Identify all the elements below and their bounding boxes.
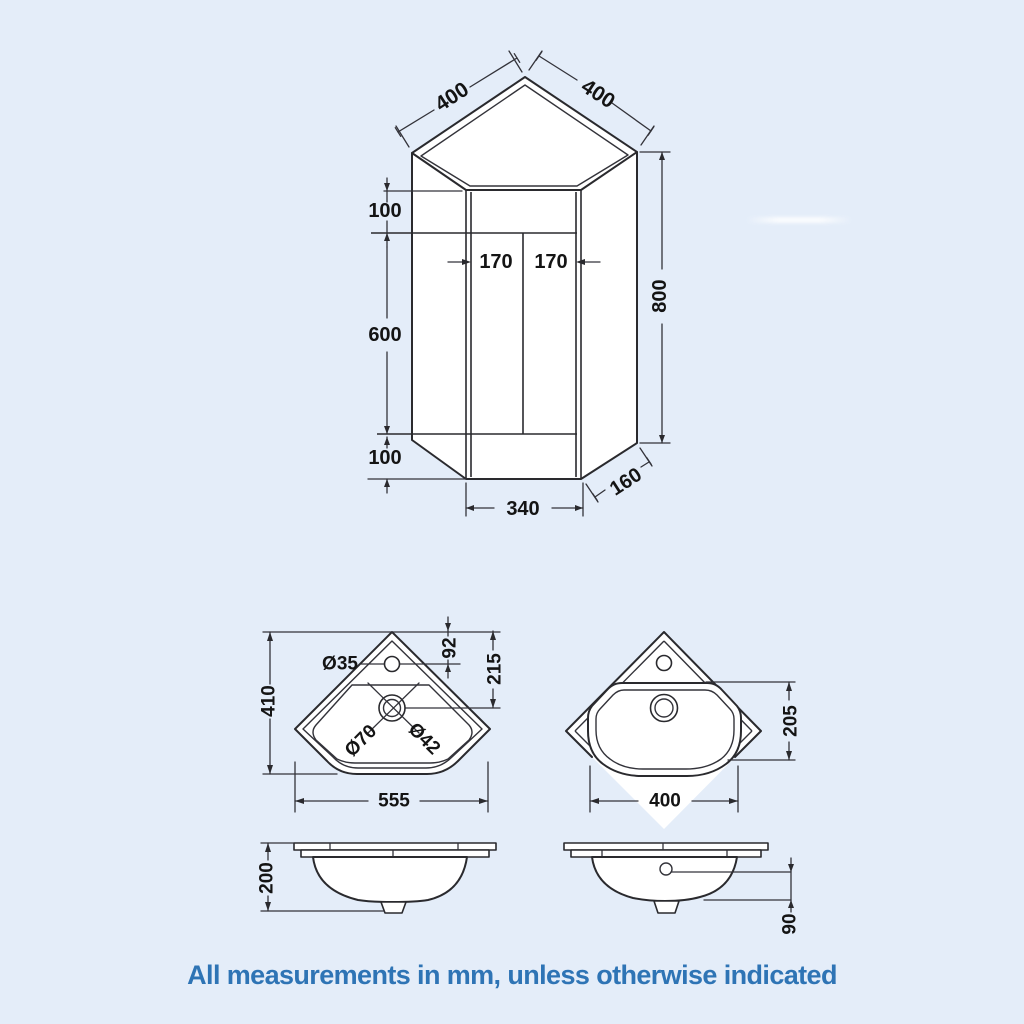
- dim-top-right-edge-label: 400: [577, 75, 619, 113]
- basin-plan-view: Ø35 Ø70 Ø42 92 215 410: [259, 617, 506, 812]
- dim-basin-depth: 410: [259, 632, 280, 774]
- dim-bowl-depth-label: 205: [781, 705, 802, 737]
- diagram-page: 400 400 100 600: [0, 0, 1024, 1024]
- dim-waste-setback: 215: [485, 631, 506, 708]
- dim-tap-setback-label: 92: [440, 637, 461, 658]
- side2-overflow-hole: [660, 863, 672, 875]
- vanity-technical-drawing: 400 400 100 600: [0, 0, 1024, 1024]
- side1-rim-top-slab: [294, 843, 496, 850]
- dim-overall-height-label: 800: [649, 279, 671, 312]
- side1-waste-stub: [381, 902, 406, 913]
- cabinet-view: 400 400 100 600: [368, 51, 671, 520]
- dim-plinth-height-label: 100: [368, 447, 401, 469]
- dim-counter-band-label: 100: [368, 200, 401, 222]
- side2-rim-top-slab: [564, 843, 768, 850]
- dim-tap-setback: 92: [440, 617, 461, 678]
- basin-front-plan-view: 205 400: [566, 632, 802, 829]
- dim-front-width: 340: [466, 483, 583, 520]
- dim-tap-hole-label: Ø35: [322, 654, 358, 675]
- side2-waste-stub: [654, 901, 679, 913]
- dim-left-door-label: 170: [479, 251, 512, 273]
- dim-basin-depth-label: 410: [259, 685, 280, 717]
- dim-overflow-setback: 90: [780, 858, 801, 935]
- dim-side-return-label: 160: [606, 464, 646, 501]
- dim-side-height: 200: [257, 843, 278, 911]
- cabinet-outline: [412, 77, 637, 479]
- dim-front-width-label: 340: [506, 498, 539, 520]
- dim-top-left-edge-label: 400: [431, 78, 473, 116]
- side1-bowl-profile: [313, 857, 467, 902]
- dim-plinth-height: 100: [368, 437, 401, 493]
- dim-side-height-label: 200: [257, 862, 278, 894]
- side2-rim-bottom-slab: [571, 850, 761, 857]
- dim-waste-setback-label: 215: [485, 653, 506, 685]
- side1-rim-bottom-slab: [301, 850, 489, 857]
- basin-side-view-left: 200: [257, 843, 497, 913]
- measurement-note: All measurements in mm, unless otherwise…: [0, 960, 1024, 991]
- dim-counter-band: 100: [368, 178, 401, 247]
- dim-bowl-depth: 205: [781, 682, 802, 760]
- tap-hole: [385, 657, 400, 672]
- dim-door-height-label: 600: [368, 324, 401, 346]
- dim-door-height: 600: [368, 247, 401, 434]
- dim-bowl-width-label: 400: [649, 791, 681, 812]
- dim-basin-width-label: 555: [378, 791, 410, 812]
- basin-side-view-right: 90: [564, 843, 801, 935]
- basin2-tap-hole: [657, 656, 672, 671]
- dim-right-door-label: 170: [534, 251, 567, 273]
- dim-overflow-setback-label: 90: [780, 913, 801, 934]
- dim-overall-height: 800: [640, 152, 671, 443]
